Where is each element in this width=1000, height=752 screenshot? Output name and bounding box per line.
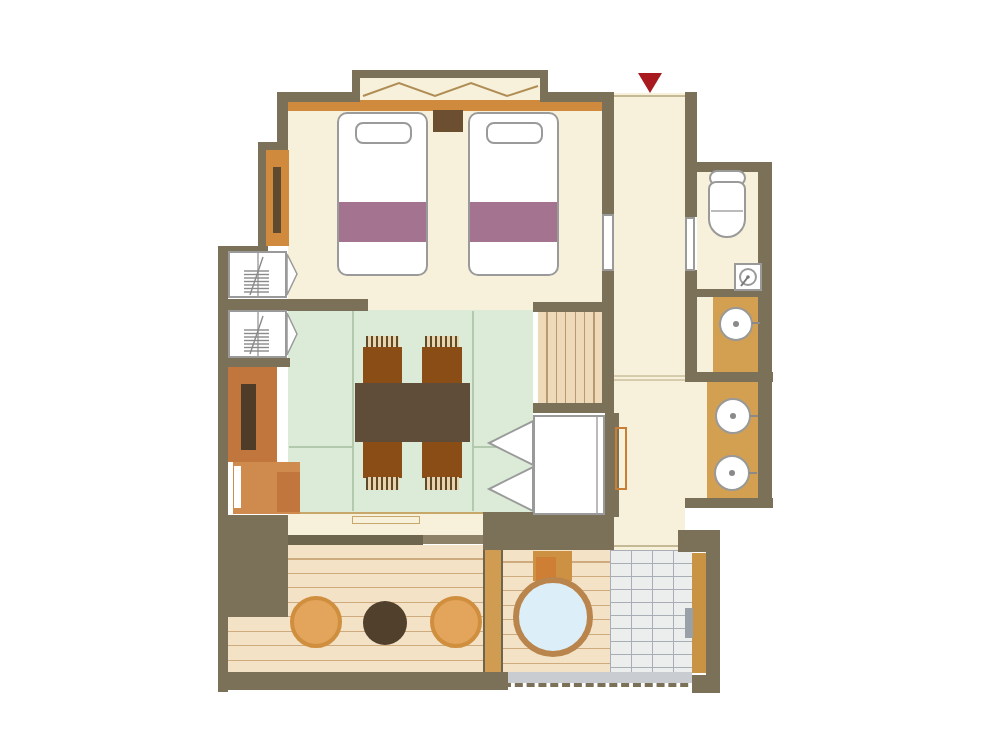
nightstand: [433, 110, 463, 132]
folding-door-closet: [533, 415, 605, 515]
deck-stool-2: [430, 596, 482, 648]
bed-left-blanket: [339, 202, 426, 242]
toilet-door: [685, 217, 695, 271]
dining-chair: [422, 442, 462, 478]
shower-fixture: [685, 608, 693, 638]
vanity-bottom-wall: [685, 498, 773, 508]
bay-window-left-wall: [352, 70, 360, 102]
deck-stool-1: [290, 596, 342, 648]
corridor-right-wall-upper: [685, 92, 697, 217]
left-wall-top: [277, 92, 288, 146]
closet-2-panel-line: [257, 312, 259, 356]
vanity-sink-2-drain: [730, 413, 736, 419]
bed-right-pillow: [486, 122, 543, 144]
bath-corner-wall: [692, 675, 720, 693]
right-outer-wall: [758, 162, 772, 508]
dining-chair: [422, 347, 462, 383]
deck-bottom-wall: [218, 672, 508, 690]
corridor-floor: [614, 93, 685, 382]
bath-side-fence: [692, 553, 706, 673]
left-outer-wall: [218, 246, 228, 692]
vanity-sink-3-drain: [729, 470, 735, 476]
deck-divider-fence: [483, 548, 503, 672]
round-tea-table: [363, 601, 407, 645]
closet-1-panel-line: [257, 253, 259, 296]
chair-fringe: [425, 477, 459, 490]
step-bottom-wall: [533, 403, 614, 413]
veranda-step: [352, 516, 420, 524]
bay-window-right-wall: [540, 70, 548, 102]
bedroom-sliding-door: [602, 214, 614, 271]
vanity-sink-1-drain: [733, 321, 739, 327]
tv: [241, 384, 256, 450]
folding-closet-panel-line: [596, 417, 598, 513]
step-landing: [538, 308, 602, 403]
bay-window-top-wall: [352, 70, 548, 78]
dining-chair: [363, 442, 402, 478]
shower-tile-floor: [610, 550, 692, 672]
corridor-left-wall-mid: [602, 308, 614, 412]
vanity-divider-wall: [685, 372, 773, 382]
toilet-seat-line: [711, 210, 743, 212]
veranda-sill-light: [423, 535, 483, 544]
low-cabinet-slot: [234, 466, 241, 508]
open-edge-dashed-line: [503, 683, 700, 687]
bay-window-floor: [360, 78, 540, 100]
bath-right-wall: [706, 530, 720, 693]
corner-basin-bowl: [739, 268, 757, 286]
changing-room-floor-lower: [614, 498, 685, 550]
wall-cabinet-slot: [273, 167, 281, 233]
drain-gutter: [503, 672, 692, 683]
low-cabinet-top: [277, 472, 300, 512]
bed-right-blanket: [470, 202, 557, 242]
low-table: [355, 383, 470, 442]
wall-top-left: [277, 92, 355, 102]
chair-fringe: [366, 477, 399, 490]
changing-room-floor-upper: [614, 382, 707, 498]
wall-below-left-closet: [218, 358, 290, 367]
dining-chair: [363, 347, 402, 383]
round-bathtub: [513, 577, 593, 657]
veranda-sill-dark: [288, 535, 423, 545]
towel-rail: [615, 427, 627, 490]
bed-left-pillow: [355, 122, 412, 144]
deck-corner-wall-block: [218, 515, 288, 617]
floor-plan: [0, 0, 1000, 752]
wall-below-folding-closet: [483, 512, 614, 550]
corridor-right-wall-lower: [685, 270, 697, 382]
bedroom-right-wall-upper: [602, 92, 614, 214]
entrance-arrow-icon: [638, 73, 662, 93]
